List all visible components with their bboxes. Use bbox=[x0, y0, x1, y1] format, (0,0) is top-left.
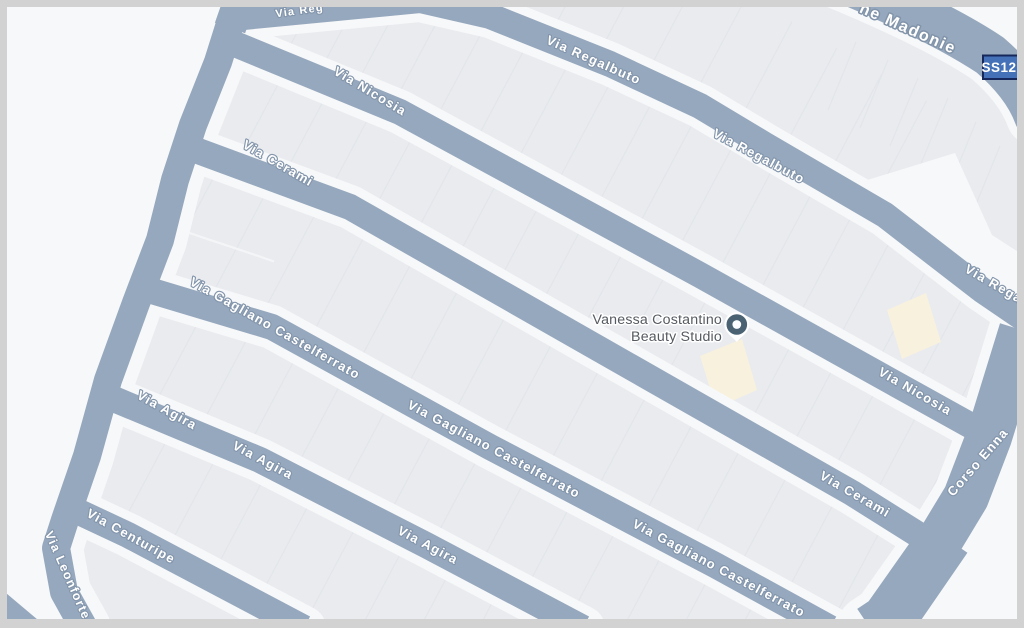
svg-text:Beauty Studio: Beauty Studio bbox=[631, 329, 722, 345]
svg-text:Vanessa Costantino: Vanessa Costantino bbox=[592, 312, 722, 328]
